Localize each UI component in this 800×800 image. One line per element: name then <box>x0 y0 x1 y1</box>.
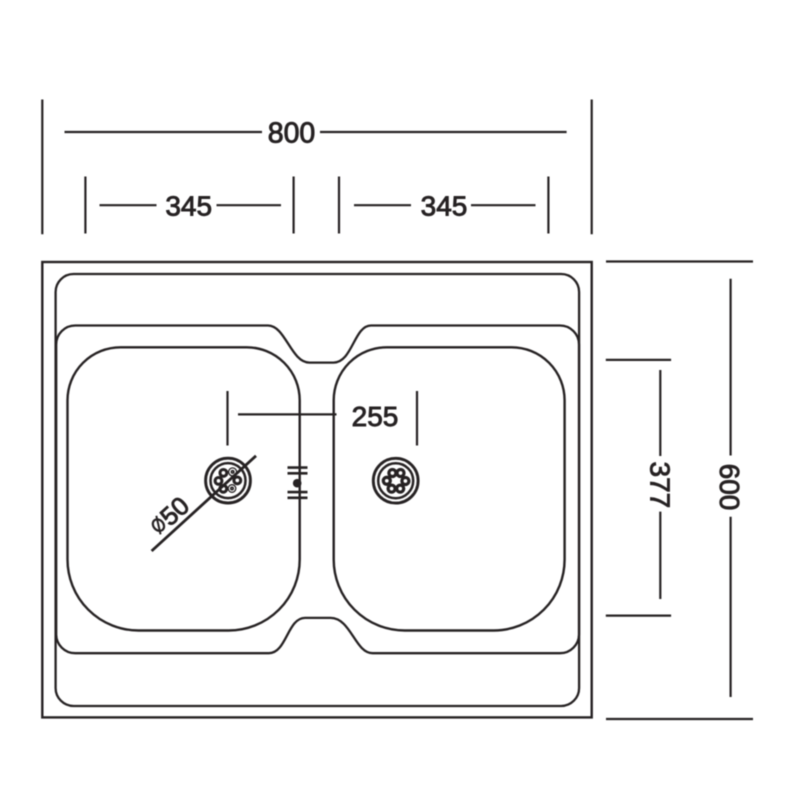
svg-text:255: 255 <box>352 401 399 432</box>
svg-text:345: 345 <box>421 190 468 221</box>
svg-text:377: 377 <box>644 462 675 509</box>
svg-text:345: 345 <box>165 190 212 221</box>
svg-text:50: 50 <box>155 492 195 532</box>
svg-text:800: 800 <box>268 117 316 149</box>
svg-text:600: 600 <box>714 464 745 511</box>
